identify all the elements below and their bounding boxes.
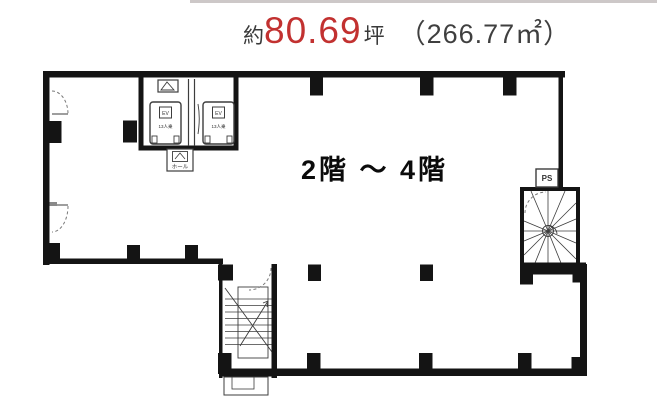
ev-capacity-label: 13人乗 — [158, 123, 173, 130]
walls — [43, 71, 587, 378]
spiral-staircase — [522, 189, 578, 265]
door-arcs — [48, 91, 68, 232]
ev-label: EV — [162, 111, 169, 117]
elevator-block: EV 13人乗 EV 13人乗 — [141, 75, 236, 148]
elevator-car-left: EV 13人乗 — [150, 102, 181, 144]
floorplan-drawing: PS — [0, 0, 657, 402]
ps-label: PS — [542, 174, 553, 183]
ev-label: EV — [215, 111, 222, 117]
columns — [49, 78, 586, 377]
ev-hall: ホール — [167, 149, 193, 171]
ev-hall-label: ホール — [172, 164, 189, 171]
ev-capacity-label: 13人乗 — [211, 123, 226, 130]
elevator-car-right: EV 13人乗 — [203, 102, 234, 144]
ps-shaft: PS — [536, 169, 558, 187]
